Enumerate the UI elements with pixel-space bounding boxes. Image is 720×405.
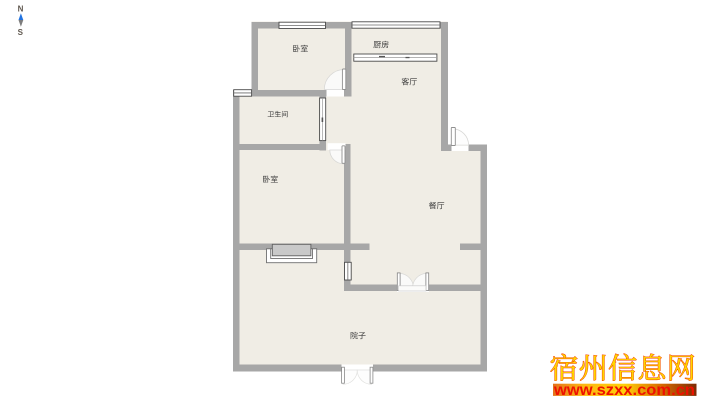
svg-text:S: S — [18, 28, 24, 37]
svg-text:www.szxx.com.cn: www.szxx.com.cn — [553, 382, 695, 399]
svg-text:N: N — [18, 5, 24, 14]
